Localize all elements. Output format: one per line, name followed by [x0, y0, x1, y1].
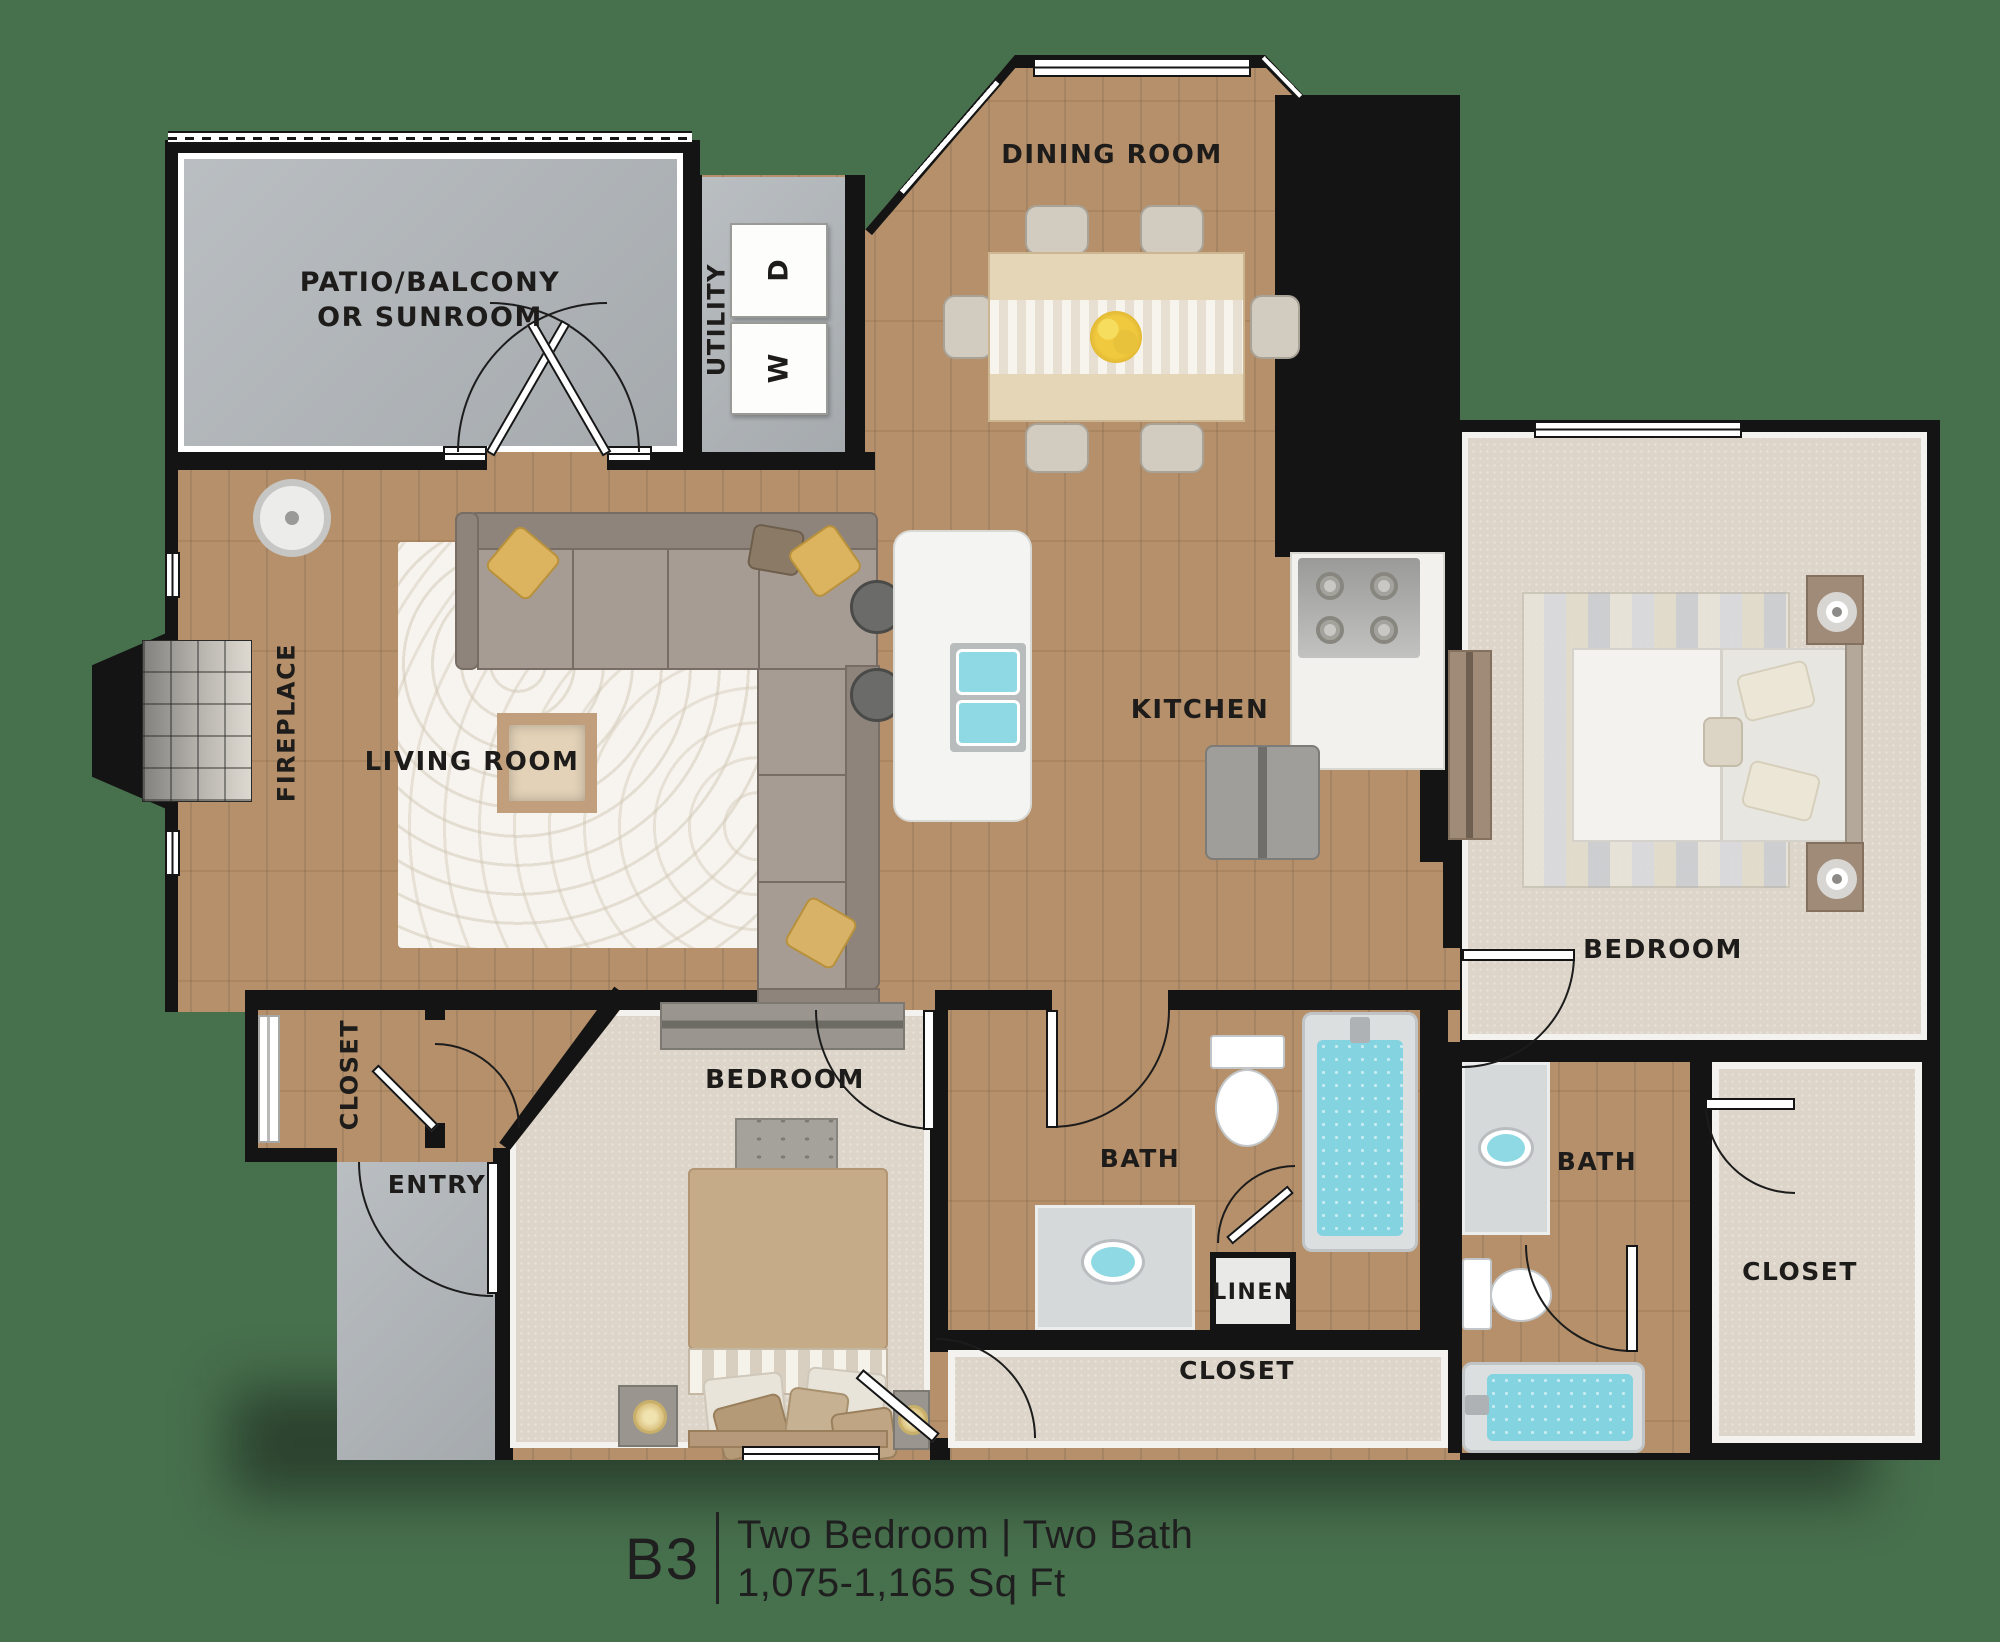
wall [1448, 1062, 1462, 1453]
toilet-tank [1462, 1258, 1492, 1330]
dining-chair [1025, 423, 1089, 473]
dining-chair [1025, 205, 1089, 255]
entry-label: ENTRY [357, 1169, 517, 1202]
title-divider [716, 1512, 719, 1604]
wall [948, 1330, 1448, 1350]
floor-lamp-bulb [285, 511, 299, 525]
living-window [165, 830, 180, 876]
dining-chair [1250, 295, 1300, 359]
closet-second-label: CLOSET [1700, 1256, 1900, 1289]
nightstand [618, 1385, 678, 1447]
dryer-label: D [763, 259, 794, 281]
bed-bottom-duvet [688, 1168, 888, 1350]
headboard-right [1845, 640, 1863, 852]
bedroom-bottom-label: BEDROOM [675, 1064, 895, 1098]
dresser [1448, 650, 1492, 840]
plan-title-line2: 1,075-1,165 Sq Ft [737, 1561, 1437, 1606]
flower-centerpiece [1090, 311, 1142, 363]
dining-chair [1140, 205, 1204, 255]
patio-screen-edge [168, 131, 692, 144]
dining-room-label: DINING ROOM [962, 139, 1262, 173]
closet-entry-sliding-door [258, 1015, 280, 1143]
wall [425, 1010, 445, 1020]
bath-main-label: BATH [1070, 1143, 1210, 1176]
island-sink-basin [956, 649, 1020, 695]
bay-window [1033, 58, 1251, 77]
floor-plan: D W [165, 55, 1940, 1460]
nightstand [1806, 842, 1864, 912]
plan-title-line1: Two Bedroom | Two Bath [737, 1513, 1437, 1558]
stove-burner [1316, 616, 1344, 644]
closet-main-label: CLOSET [1127, 1355, 1347, 1388]
wall [245, 1010, 258, 1148]
bath-second-sink-basin [1487, 1134, 1525, 1162]
wall [1275, 95, 1460, 557]
kitchen-cart [1205, 745, 1320, 860]
wall [845, 172, 865, 452]
closet-second-door-leaf [1705, 1098, 1795, 1110]
kitchen-label: KITCHEN [1090, 694, 1310, 728]
linen-label: LINEN [1193, 1279, 1313, 1308]
stove-burner [1370, 616, 1398, 644]
dining-chair [1140, 423, 1204, 473]
fireplace-tiles [142, 640, 252, 802]
bath-second-label: BATH [1527, 1146, 1667, 1179]
bedroom-bottom-door-leaf [923, 1010, 935, 1130]
utility-label: UTILITY [701, 230, 732, 410]
bath-main-sink-basin [1091, 1247, 1135, 1277]
living-window [165, 552, 180, 598]
stove-burner [1370, 572, 1398, 600]
stove [1298, 558, 1420, 658]
table-lamp-bulb [1832, 607, 1842, 617]
tub-faucet [1350, 1017, 1370, 1043]
bath-second-door-leaf [1626, 1245, 1638, 1352]
bed-bench [735, 1118, 838, 1174]
bedroom-right-label: BEDROOM [1553, 934, 1773, 968]
dryer: D [730, 223, 828, 318]
table-lamp-gold [633, 1400, 667, 1434]
washer-label: W [763, 354, 794, 384]
living-room-label: LIVING ROOM [322, 746, 622, 780]
plan-code: B3 [560, 1526, 700, 1593]
patio-label: PATIO/BALCONY OR SUNROOM [280, 265, 580, 335]
bedroom-right-window [1534, 421, 1742, 438]
fireplace-label: FIREPLACE [271, 623, 302, 823]
island-sink-basin [956, 700, 1020, 746]
wall [1690, 1352, 1712, 1460]
closet-entry-label: CLOSET [334, 990, 365, 1160]
tub-faucet [1465, 1395, 1489, 1415]
toilet-tank [1210, 1035, 1285, 1069]
dining-chair [943, 295, 993, 359]
bath-second-tub-water [1487, 1374, 1633, 1441]
wall [245, 1148, 337, 1162]
bed-cushion [1703, 717, 1743, 767]
nightstand [1806, 575, 1864, 645]
stove-burner [1316, 572, 1344, 600]
table-lamp-bulb [1832, 874, 1842, 884]
floor-plan-image: D W [0, 0, 2000, 1642]
toilet-bowl [1215, 1069, 1279, 1147]
